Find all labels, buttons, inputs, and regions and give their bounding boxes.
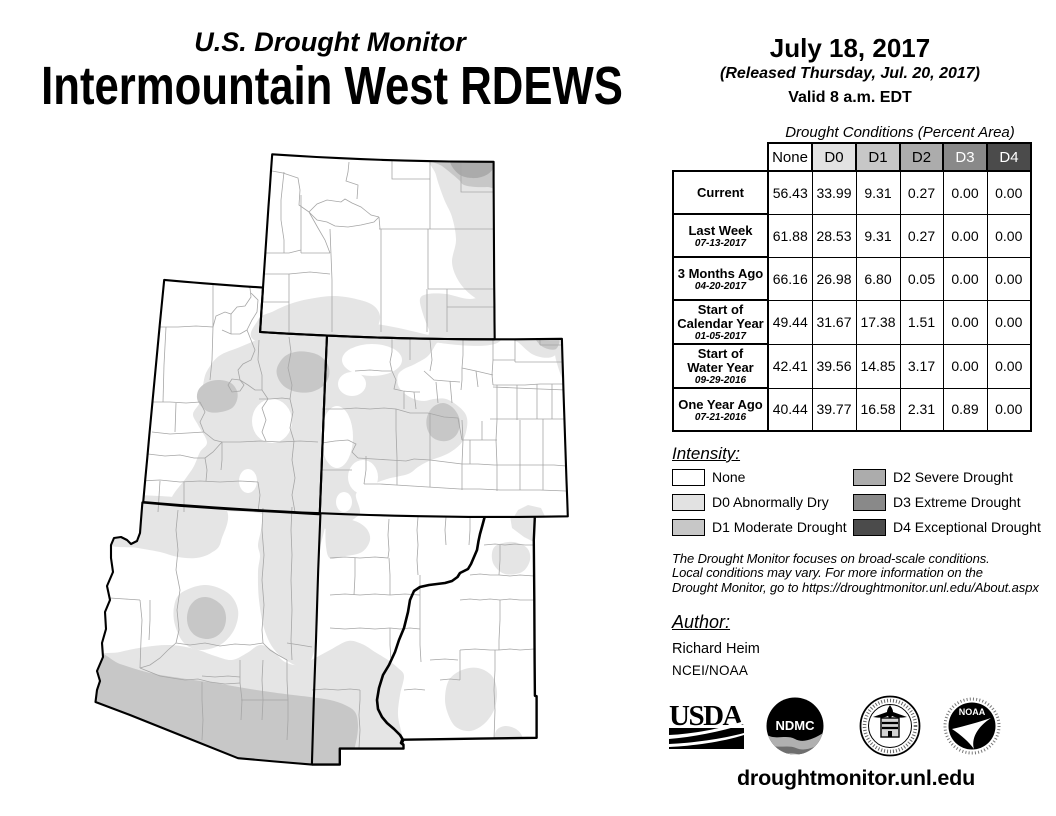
svg-text:NDMC: NDMC [776, 718, 816, 733]
svg-text:NOAA: NOAA [959, 707, 986, 717]
